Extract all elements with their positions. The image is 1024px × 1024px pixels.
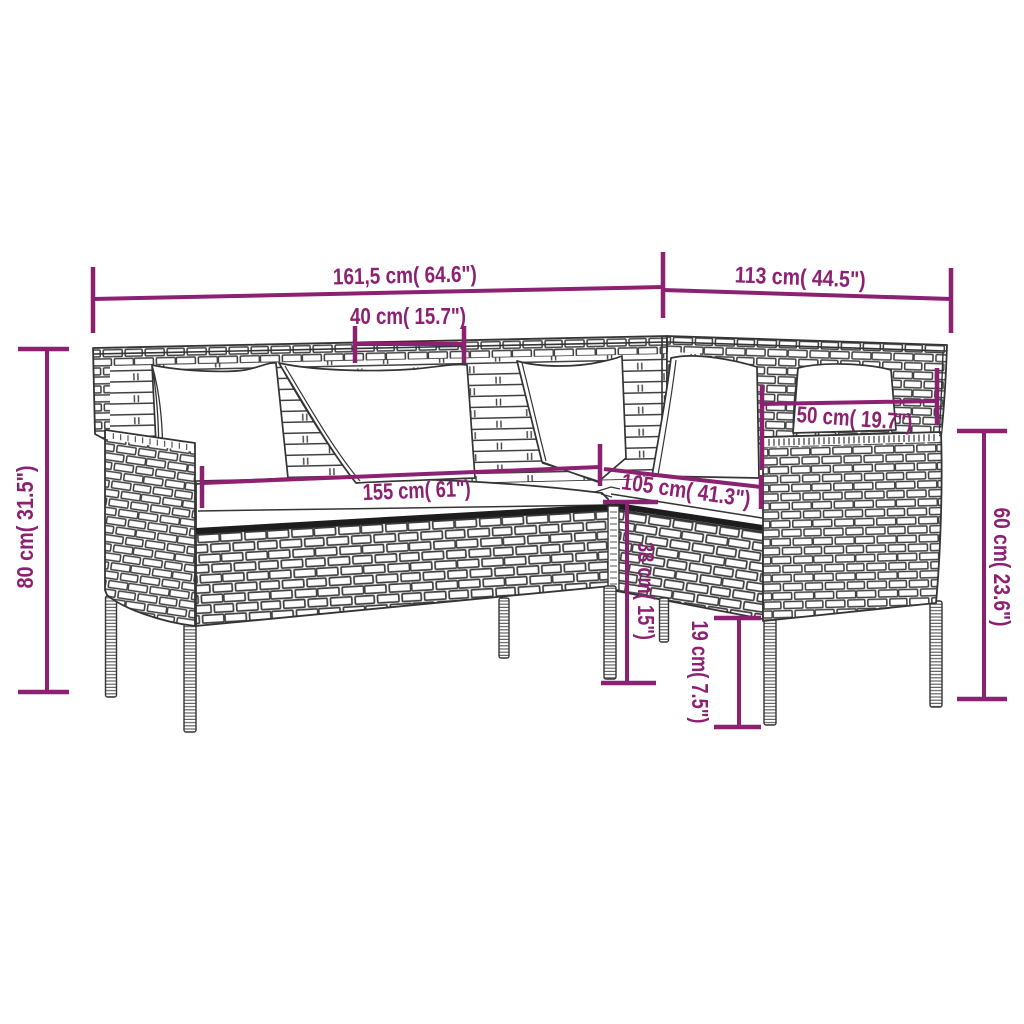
svg-text:161,5 cm( 64.6"): 161,5 cm( 64.6") [333, 260, 478, 289]
svg-text:113 cm( 44.5"): 113 cm( 44.5") [734, 261, 866, 292]
svg-text:80 cm( 31.5"): 80 cm( 31.5") [12, 466, 38, 589]
svg-text:19 cm( 7.5"): 19 cm( 7.5") [687, 621, 713, 724]
svg-text:40 cm( 15.7"): 40 cm( 15.7") [350, 303, 466, 329]
svg-text:60 cm( 23.6"): 60 cm( 23.6") [989, 508, 1015, 627]
svg-text:38 cm( 15"): 38 cm( 15") [633, 542, 659, 640]
svg-text:155 cm( 61"): 155 cm( 61") [362, 475, 471, 505]
